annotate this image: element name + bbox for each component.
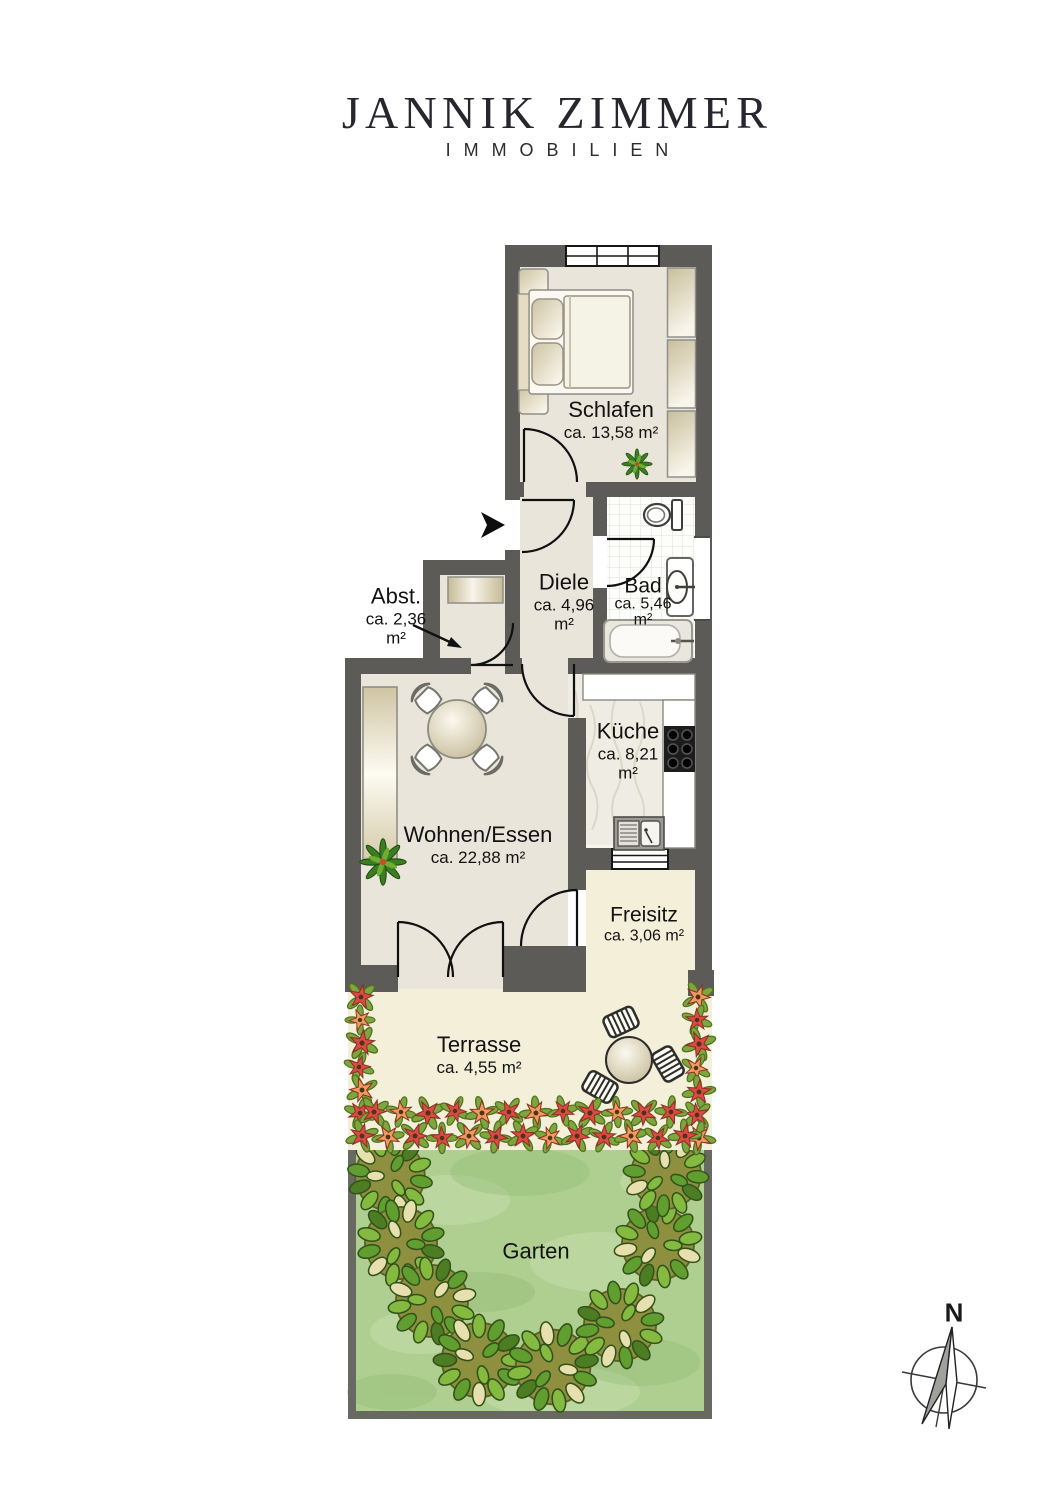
logo-title: JANNIK ZIMMER [342,86,772,139]
room-area: ca. 3,06 m² [604,927,684,945]
room-name: Abst. [366,585,427,610]
room-name: Wohnen/Essen [404,823,553,848]
room-name: Garten [502,1240,569,1265]
kueche-label: Küche ca. 8,21 m² [597,720,659,783]
kitchen-sink [614,817,664,850]
room-name: Terrasse [436,1033,521,1058]
room-area-unit: m² [615,613,672,629]
bed [518,269,633,414]
duvet [564,296,630,388]
counter-right [663,700,695,848]
plant-icon [622,449,652,479]
logo-subtitle: IMMOBILIEN [342,140,772,161]
hob [664,726,695,772]
shelf [448,577,503,603]
room-name: Schlafen [564,398,659,423]
room-area: ca. 8,21 [597,744,659,763]
bad-window [694,537,710,620]
bad-label: Bad ca. 5,46 m² [615,576,672,629]
garten-label: Garten [502,1240,569,1265]
room-name: Freisitz [604,903,684,927]
room-name: Bad [615,576,672,597]
room-name: Küche [597,720,659,745]
compass-north-label: N [945,1298,964,1329]
plant-icon [360,839,406,885]
abst-label: Abst. ca. 2,36 m² [366,585,427,648]
terrace-table [606,1037,652,1083]
wohnen-label: Wohnen/Essen ca. 22,88 m² [404,823,553,867]
room-area-unit: m² [534,614,595,633]
room-name: Diele [534,571,595,596]
compass-icon [902,1327,986,1429]
wardrobe [668,268,696,477]
schlafen-label: Schlafen ca. 13,58 m² [564,398,659,442]
garden-wall-bottom [348,1411,712,1419]
pillow [532,343,563,385]
room-area-unit: m² [366,628,427,647]
room-area: ca. 13,58 m² [564,423,659,442]
counter-top [583,674,695,700]
floorplan-page: JANNIK ZIMMER IMMOBILIEN Schlafen ca. 13… [0,0,1060,1500]
logo: JANNIK ZIMMER IMMOBILIEN [342,86,772,161]
room-area: ca. 22,88 m² [404,848,553,867]
terrasse-label: Terrasse ca. 4,55 m² [436,1033,521,1077]
headboard [518,294,529,390]
garden-area [340,1126,720,1425]
floorplan-graphic [0,0,1060,1500]
abst-furniture [448,577,503,603]
garden-wall-right [704,1148,712,1419]
room-area: ca. 2,36 [366,609,427,628]
room-area: ca. 4,96 [534,595,595,614]
sideboard [363,687,397,861]
entrance-arrow-icon [481,512,505,538]
room-area-unit: m² [597,763,659,782]
pillow [532,299,563,339]
room-area: ca. 4,55 m² [436,1058,521,1077]
kueche-window [612,849,668,869]
dining-table [428,700,486,758]
diele-label: Diele ca. 4,96 m² [534,571,595,634]
freisitz-label: Freisitz ca. 3,06 m² [604,903,684,944]
schlafen-window [566,246,659,266]
room-area: ca. 5,46 [615,597,672,613]
